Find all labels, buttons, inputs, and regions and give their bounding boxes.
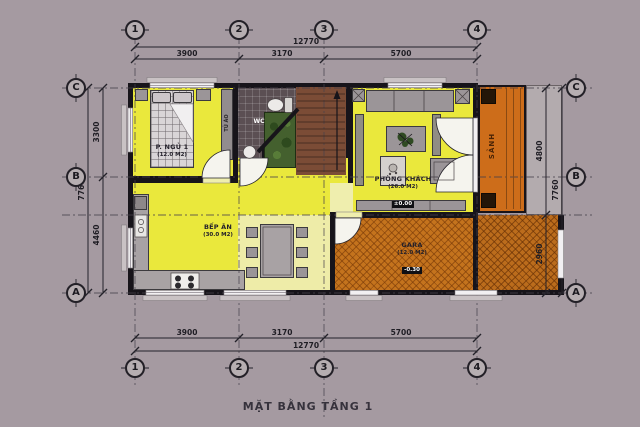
garage-level-badge: -0.30 [402,267,422,274]
side-table [455,89,470,104]
dim-left-seg2: 4460 [93,215,101,255]
grid-bubble-bottom-1: 1 [125,358,145,378]
dim-top-seg2: 3170 [262,50,302,58]
dining-table [260,224,294,278]
dim-bottom-seg1: 3900 [167,329,207,337]
pillow [152,92,171,103]
bathroom-floor-ext [238,146,262,158]
dining-chair [296,227,308,238]
living-name: PHÒNG KHÁCH [370,176,436,184]
dining-chair [246,247,258,258]
kitchen-label: BẾP ĂN (30.0 M2) [186,224,250,238]
grid-bubble-left-B: B [66,167,86,187]
grid-bubble-top-4: 4 [467,20,487,40]
dim-top-seg1: 3900 [167,50,207,58]
passage-floor [330,183,353,212]
dining-chair [246,267,258,278]
porch-label: SẢNH [488,118,496,174]
grid-bubble-top-3: 3 [314,20,334,40]
garage-name: GARA [380,242,444,250]
driveway-right-wall [558,215,564,295]
dim-right-seg2: 2960 [536,234,544,274]
living-area: (26.0 M2) [370,184,436,191]
kitchen-name: BẾP ĂN [186,224,250,232]
living-level-badge: ±0.00 [392,201,414,208]
dim-left-seg1: 3300 [93,112,101,152]
bedroom-label: P. NGỦ 1 (12.0 M2) [140,144,204,158]
kitchen-counter-bottom [133,270,245,290]
shelf-strip [432,114,441,156]
dim-top-seg3: 5700 [381,50,421,58]
grid-bubble-top-1: 1 [125,20,145,40]
grid-bubble-bottom-4: 4 [467,358,487,378]
porch-column-bottom [481,193,496,208]
dim-right-overall: 7760 [552,170,560,210]
wc-label: WC [250,118,268,125]
living-label: PHÒNG KHÁCH (26.0 M2) ±0.00 [370,176,436,209]
nightstand [196,89,211,101]
driveway [478,215,564,290]
bedroom-area: (12.0 M2) [140,152,204,159]
wardrobe-label: TỦ ÁO [224,99,230,147]
dim-right-seg1: 4800 [536,131,544,171]
grid-bubble-right-A: A [566,283,586,303]
dim-bottom-seg2: 3170 [262,329,302,337]
bedroom-name: P. NGỦ 1 [140,144,204,152]
kitchen-area: (30.0 M2) [186,232,250,239]
dim-bottom-overall: 12770 [286,342,326,350]
dim-bottom-seg3: 5700 [381,329,421,337]
floor-plan-canvas: P. NGỦ 1 (12.0 M2) BẾP ĂN (30.0 M2) PHÒN… [0,0,640,427]
garage-area: (12.0 M2) [380,250,444,257]
garage-label: GARA (12.0 M2) -0.30 [380,242,444,275]
sofa [366,90,454,112]
stairs [296,87,346,175]
grid-bubble-bottom-2: 2 [229,358,249,378]
nightstand [135,89,148,101]
fridge [134,196,147,210]
grid-bubble-top-2: 2 [229,20,249,40]
side-table [352,89,365,102]
grid-bubble-left-C: C [66,78,86,98]
dining-chair [296,247,308,258]
shelf-strip [355,114,364,186]
grid-bubble-left-A: A [66,283,86,303]
drawing-title: MẶT BẰNG TẦNG 1 [218,400,398,413]
stair-planter [264,112,296,168]
grid-bubble-right-B: B [566,167,586,187]
dining-chair [296,267,308,278]
pillow [173,92,192,103]
driveway-bottom-wall [478,290,564,295]
grid-bubble-bottom-3: 3 [314,358,334,378]
coffee-table [386,126,426,152]
porch-column-top [481,89,496,104]
grid-bubble-right-C: C [566,78,586,98]
